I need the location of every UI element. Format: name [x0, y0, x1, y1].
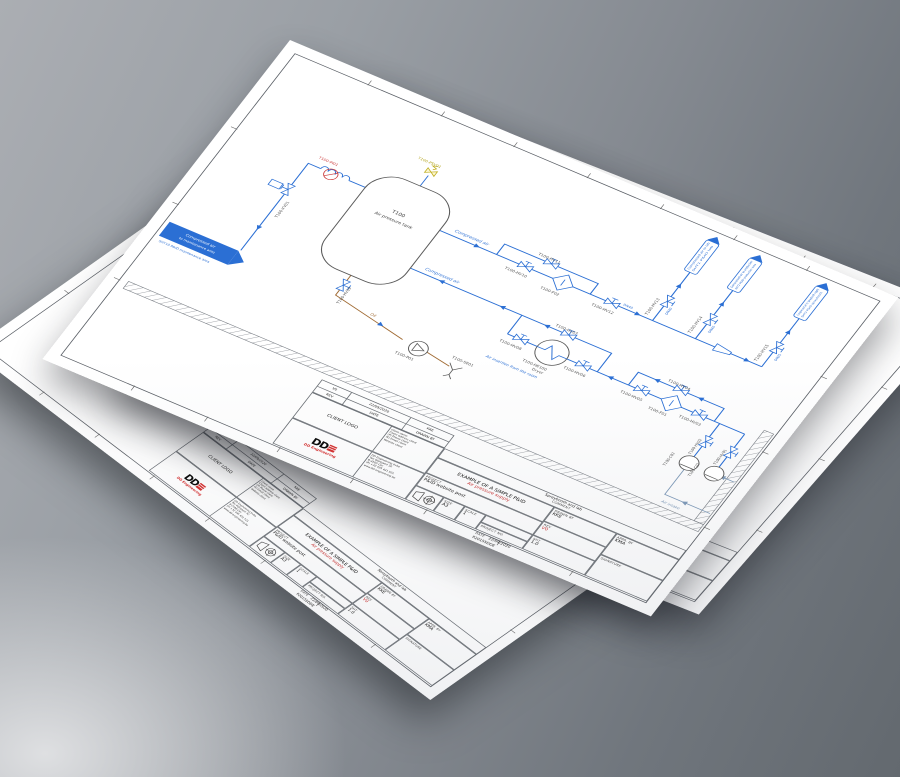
- psv-riser-line: [420, 176, 428, 186]
- hv03-label: T100-HV03: [677, 414, 703, 427]
- se01-label: T100-SE01: [450, 355, 475, 368]
- drain-funnel-icon: [440, 363, 462, 380]
- hv12-label: T100-HV12: [589, 302, 615, 315]
- return-line-filter-section: [628, 372, 754, 434]
- dn40-branch1-label: DN40: [664, 307, 673, 315]
- reducer-icon: [712, 344, 733, 357]
- photo-scene: { "scene": {"sheet_count": 3, "backgroun…: [0, 0, 900, 777]
- control-valve-icon: [267, 177, 296, 195]
- oil-label: Oil: [369, 312, 378, 318]
- air-insertion-note: Air insertion from the room: [484, 354, 539, 380]
- dn25-branch3-label: DN25: [773, 353, 782, 361]
- hv01-label: T100-HV01: [712, 449, 728, 466]
- client-logo-text: CLIENT LOGO: [325, 414, 358, 431]
- xv01-label: T100-XV01: [273, 200, 291, 219]
- client-logo-text: CLIENT LOGO: [206, 454, 233, 474]
- compressor-c01-icon: [700, 464, 727, 484]
- psv-label: T100-PSV01: [416, 155, 443, 169]
- dn40-branch2-label: DN40: [707, 325, 716, 333]
- hv10-label: T100-HV10: [503, 265, 529, 278]
- gauge-label: T100-PI01: [317, 155, 340, 167]
- pressure-gauge-icon: [321, 167, 341, 182]
- hv02-label: T100-HV02: [687, 438, 703, 455]
- c02-label: T100-C02: [662, 452, 676, 467]
